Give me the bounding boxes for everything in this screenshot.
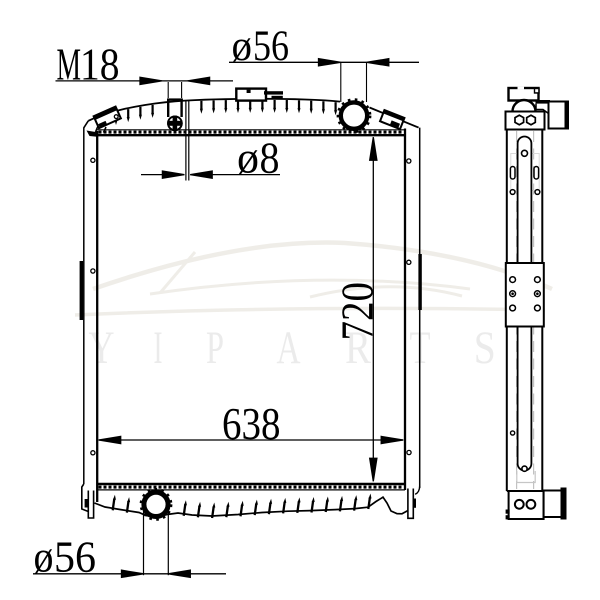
svg-text:P: P — [206, 322, 224, 374]
svg-text:I: I — [154, 322, 163, 374]
svg-text:ø: ø — [237, 134, 259, 183]
svg-text:56: 56 — [54, 532, 96, 581]
svg-text:M: M — [57, 39, 82, 90]
svg-text:S: S — [474, 322, 496, 374]
svg-text:ø: ø — [232, 23, 253, 70]
svg-text:720: 720 — [332, 282, 383, 341]
svg-text:56: 56 — [253, 23, 289, 70]
svg-text:ø: ø — [34, 532, 54, 581]
svg-text:Y: Y — [89, 322, 115, 374]
svg-text:8: 8 — [260, 134, 280, 183]
svg-text:18: 18 — [80, 39, 120, 90]
svg-text:A: A — [277, 322, 301, 374]
svg-text:638: 638 — [222, 398, 281, 449]
